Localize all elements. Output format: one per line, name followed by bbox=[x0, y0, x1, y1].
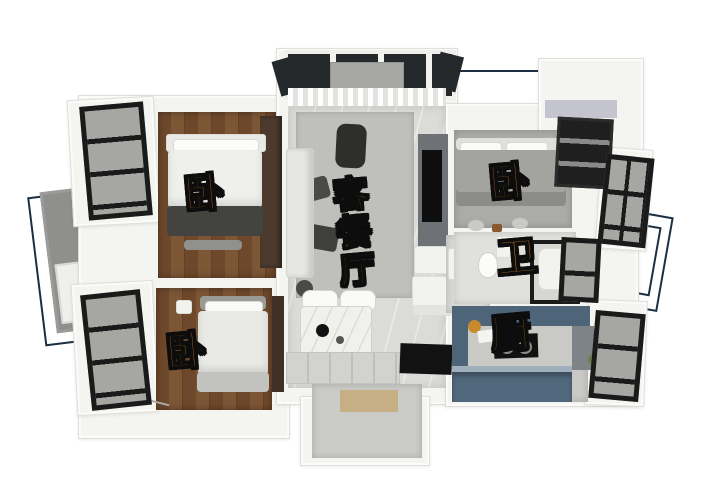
kitchen-base-cabinets bbox=[452, 372, 572, 402]
bedroom-top-left-window bbox=[79, 101, 153, 220]
bedroom-bottom-left-duvet bbox=[198, 311, 268, 375]
toilet bbox=[478, 252, 498, 278]
closet-top-panel bbox=[545, 100, 617, 118]
table-bowl bbox=[336, 336, 344, 344]
table-vase bbox=[316, 324, 329, 337]
bedroom-bottom-left-window bbox=[80, 289, 152, 411]
bedroom-bottom-left-side-table bbox=[176, 300, 192, 314]
floorplan-image: { "image": { "kind": "3d-rendered-floor-… bbox=[0, 0, 702, 502]
room-label-bedroom-top-left: 卧 bbox=[182, 172, 225, 216]
bedroom-bottom-left-foot-blanket bbox=[197, 372, 269, 392]
kitchen-window bbox=[588, 310, 645, 402]
bedroom-right-tray bbox=[492, 224, 502, 232]
bedroom-right-pouf-1 bbox=[468, 220, 484, 231]
room-label-bedroom-bottom-left: 卧 bbox=[164, 330, 207, 374]
balcony-cabinet bbox=[330, 62, 404, 90]
sideboard bbox=[286, 352, 400, 384]
room-label-living-dining: 客餐厅 bbox=[327, 175, 372, 292]
tv-screen bbox=[422, 150, 442, 222]
balcony-curtain bbox=[288, 88, 446, 108]
sofa bbox=[286, 148, 314, 278]
entry-black-mat bbox=[399, 343, 452, 375]
room-label-bathroom: 卫 bbox=[495, 236, 538, 280]
tv-console bbox=[414, 246, 450, 274]
room-label-bedroom-right: 卧 bbox=[487, 161, 530, 205]
lounge-chair bbox=[335, 123, 367, 169]
entry-door-mat bbox=[340, 390, 398, 412]
plan-outline-top-right-line bbox=[448, 70, 545, 72]
room-label-kitchen: 厨 bbox=[489, 312, 532, 356]
bedroom-top-left-bench bbox=[184, 240, 242, 250]
bedroom-right-pouf-2 bbox=[512, 218, 528, 229]
bedroom-bottom-left-door-frame bbox=[272, 296, 284, 392]
bedroom-right-window bbox=[597, 154, 654, 249]
bathroom-window bbox=[558, 237, 601, 303]
